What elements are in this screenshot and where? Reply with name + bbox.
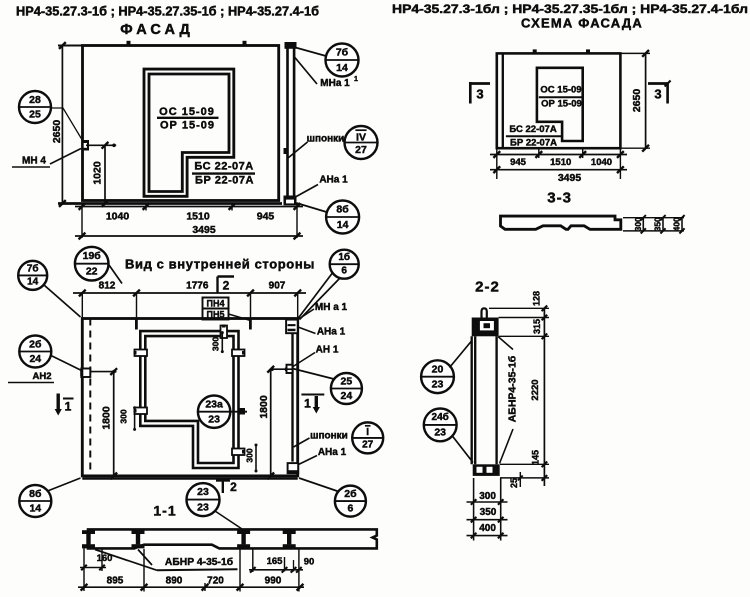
svg-text:3: 3: [654, 87, 661, 102]
svg-text:2650: 2650: [51, 120, 63, 144]
svg-text:24: 24: [341, 390, 353, 402]
svg-text:НР4-35.27.3-1б ; НР4-35.27.35: НР4-35.27.3-1б ; НР4-35.27.35-1б ; НР4-3…: [16, 5, 319, 19]
svg-text:НР4-35.27.3-1бл ; НР4-35.27.3: НР4-35.27.3-1бл ; НР4-35.27.35-1бл ; НР4…: [392, 2, 748, 16]
svg-text:14: 14: [29, 503, 41, 515]
svg-text:шпонки: шпонки: [307, 134, 345, 145]
svg-text:2-2: 2-2: [475, 279, 500, 296]
svg-text:2б: 2б: [29, 338, 42, 350]
svg-text:Вид с внутренней стороны: Вид с внутренней стороны: [125, 257, 315, 272]
svg-text:МН 4: МН 4: [22, 156, 46, 167]
svg-text:25: 25: [341, 376, 353, 388]
svg-text:АНа 1: АНа 1: [319, 175, 348, 186]
svg-text:23: 23: [197, 501, 209, 513]
svg-text:IV: IV: [356, 131, 366, 143]
svg-text:шпонки: шпонки: [310, 431, 348, 442]
svg-text:1: 1: [354, 76, 358, 83]
svg-text:2220: 2220: [530, 379, 541, 400]
svg-text:БС 22-07А: БС 22-07А: [194, 161, 253, 173]
svg-text:300: 300: [633, 217, 643, 231]
svg-text:895: 895: [107, 575, 124, 586]
svg-text:14: 14: [337, 219, 349, 231]
svg-text:6: 6: [341, 266, 347, 277]
svg-text:945: 945: [510, 157, 527, 168]
svg-text:3-3: 3-3: [547, 190, 572, 207]
svg-text:300: 300: [479, 491, 496, 502]
svg-text:БР 22-07А: БР 22-07А: [510, 137, 557, 148]
svg-text:1510: 1510: [186, 211, 210, 223]
svg-text:22: 22: [86, 266, 98, 278]
svg-text:БС 22-07А: БС 22-07А: [509, 124, 557, 135]
svg-text:23: 23: [208, 413, 220, 425]
svg-text:8б: 8б: [29, 488, 42, 500]
svg-text:14: 14: [336, 62, 348, 74]
svg-text:АН2: АН2: [32, 371, 51, 382]
svg-text:812: 812: [99, 281, 116, 292]
svg-text:160: 160: [97, 553, 113, 564]
svg-text:ПН4: ПН4: [207, 298, 225, 308]
svg-text:315: 315: [532, 319, 542, 334]
svg-text:165: 165: [267, 556, 284, 567]
svg-text:3495: 3495: [192, 224, 216, 236]
svg-text:400: 400: [672, 217, 682, 231]
svg-text:90: 90: [304, 557, 315, 568]
svg-text:ОР 15-09: ОР 15-09: [541, 98, 582, 109]
svg-text:ФАСАД: ФАСАД: [120, 22, 194, 38]
svg-text:1-1: 1-1: [153, 503, 176, 519]
svg-text:23а: 23а: [205, 398, 223, 410]
svg-text:1800: 1800: [101, 406, 113, 430]
svg-text:АНа 1: АНа 1: [317, 327, 346, 338]
svg-text:720: 720: [207, 575, 224, 586]
svg-text:14: 14: [27, 277, 39, 288]
svg-text:2: 2: [223, 279, 230, 293]
svg-text:990: 990: [265, 575, 282, 586]
svg-text:300: 300: [245, 448, 255, 462]
svg-text:27: 27: [355, 144, 367, 156]
svg-text:АНа 1: АНа 1: [318, 447, 347, 458]
svg-text:25: 25: [29, 109, 41, 121]
svg-text:1: 1: [304, 397, 311, 411]
svg-text:ОР 15-09: ОР 15-09: [160, 120, 215, 132]
svg-text:3: 3: [476, 87, 483, 102]
svg-text:19б: 19б: [83, 250, 102, 262]
svg-text:300: 300: [211, 337, 221, 351]
svg-text:СХЕМА ФАСАДА: СХЕМА ФАСАДА: [521, 16, 643, 31]
svg-text:3495: 3495: [558, 172, 582, 184]
svg-text:2б: 2б: [344, 488, 357, 500]
svg-text:1: 1: [65, 400, 72, 414]
svg-text:28: 28: [29, 94, 41, 106]
svg-text:1510: 1510: [550, 157, 571, 168]
svg-text:1б: 1б: [338, 251, 350, 263]
svg-text:24б: 24б: [432, 411, 449, 423]
svg-text:300: 300: [119, 409, 129, 423]
svg-text:145: 145: [531, 450, 541, 465]
svg-text:6: 6: [347, 502, 353, 514]
svg-text:I: I: [366, 427, 369, 438]
svg-text:1040: 1040: [591, 157, 612, 168]
svg-text:890: 890: [166, 575, 183, 586]
svg-text:1020: 1020: [92, 161, 104, 185]
svg-text:945: 945: [257, 211, 275, 223]
svg-text:128: 128: [532, 291, 542, 306]
svg-text:27: 27: [362, 440, 374, 451]
svg-text:АБНР 4-35-1б: АБНР 4-35-1б: [165, 556, 233, 568]
svg-text:ОС 15-09: ОС 15-09: [159, 106, 215, 118]
svg-text:8б: 8б: [336, 204, 349, 216]
svg-text:20: 20: [432, 363, 444, 375]
svg-text:2650: 2650: [631, 89, 643, 113]
svg-text:7б: 7б: [336, 47, 349, 59]
svg-text:23: 23: [432, 378, 444, 390]
svg-text:АН 1: АН 1: [316, 345, 339, 356]
svg-text:ОС 15-09: ОС 15-09: [540, 85, 581, 96]
svg-text:400: 400: [479, 523, 496, 534]
svg-text:907: 907: [269, 281, 286, 292]
svg-text:МНа 1: МНа 1: [320, 78, 350, 89]
svg-text:23: 23: [197, 486, 209, 498]
svg-text:2: 2: [230, 480, 237, 494]
svg-text:1040: 1040: [106, 211, 130, 223]
svg-text:БР 22-07А: БР 22-07А: [195, 175, 254, 187]
svg-text:АБНР4-35-1б: АБНР4-35-1б: [507, 355, 519, 422]
svg-text:24: 24: [29, 353, 41, 365]
svg-text:350: 350: [653, 217, 663, 231]
svg-text:23: 23: [434, 427, 446, 439]
svg-text:350: 350: [480, 507, 497, 518]
svg-text:1776: 1776: [186, 281, 209, 292]
svg-text:МН а 1: МН а 1: [315, 302, 348, 313]
svg-text:7б: 7б: [27, 262, 39, 274]
svg-text:1800: 1800: [258, 395, 270, 419]
